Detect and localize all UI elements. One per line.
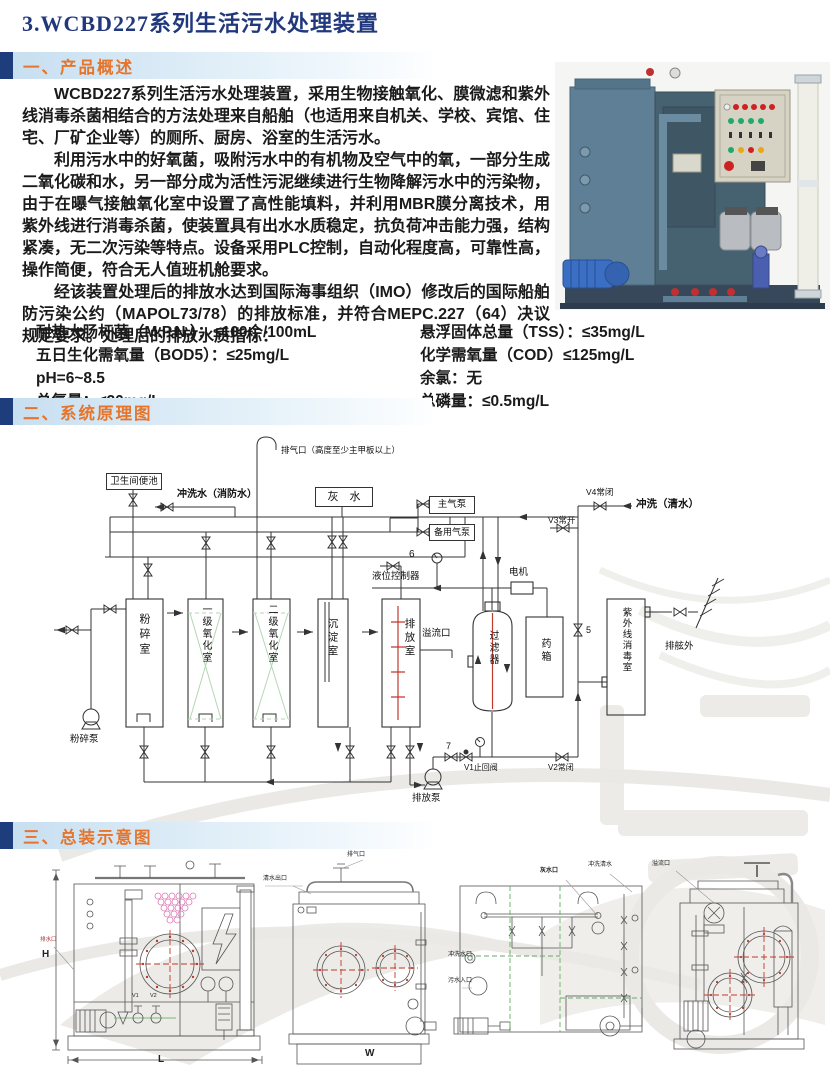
overboard-label: 排舷外 [665, 642, 694, 652]
catalog-page: 3.WCBD227系列生活污水处理装置 一、产品概述 [0, 0, 830, 1069]
overview-paragraph-1: WCBD227系列生活污水处理装置，采用生物接触氧化、膜微滤和紫外线消毒杀菌相结… [22, 84, 550, 150]
spec-item: 耐热大肠杆菌（M.P.N.）：≤100个/100mL [36, 321, 420, 344]
assembly-side-view-2: 溢流口 [652, 845, 830, 1069]
toilet-box: 卫生间便池 [106, 473, 162, 490]
front-view-geometry [52, 861, 262, 1064]
front-view-drawing [40, 852, 265, 1069]
page-title: 3.WCBD227系列生活污水处理装置 [22, 6, 379, 38]
product-photo-art [555, 62, 830, 310]
top-flush-port-label: 冲洗水口 [448, 952, 472, 958]
valve-v4-label: V4常闭 [586, 488, 613, 497]
valve-v1-label: V1止回阀 [464, 764, 498, 772]
section-marker-square [0, 52, 13, 79]
valve-6-label: 6 [409, 550, 415, 560]
overflow-label: 溢流口 [422, 629, 451, 639]
flush-fire-label: 冲洗水（消防水） [177, 490, 257, 500]
main-air-pump-box: 主气泵 [429, 496, 475, 514]
vent-label: 排气口（高度至少主甲板以上） [281, 446, 400, 455]
assembly-front-view: H L V1 V2 排水口 [40, 852, 265, 1069]
crush-pump-label: 粉碎泵 [70, 735, 99, 745]
product-photo [555, 62, 830, 310]
front-view-accents [114, 893, 204, 1024]
tank5-label: 排放室 [404, 618, 415, 659]
valve-v3-label: V3常开 [548, 516, 575, 525]
specs-right-column: 悬浮固体总量（TSS）：≤35mg/L 化学需氧量（COD）≤125mg/L 余… [420, 321, 690, 413]
dim-h-label: H [42, 950, 49, 960]
side-view-geometry [265, 860, 436, 1064]
top-view-drawing [448, 858, 653, 1069]
front-v2-label: V2 [150, 994, 157, 1000]
section-title-assembly: 三、总装示意图 [23, 824, 153, 848]
control-panel [715, 90, 790, 182]
tank3-label: 二级氧化室 [266, 604, 276, 664]
valve-v2-label: V2常闭 [548, 764, 574, 772]
system-schematic: 排气口（高度至少主甲板以上） 卫生间便池 冲洗水（消防水） 灰 水 主气泵 备用… [20, 430, 810, 818]
top-sewage-inlet-label: 污水入口 [448, 978, 472, 984]
backup-air-pump-box: 备用气泵 [429, 524, 475, 541]
dim-w-label: W [365, 1049, 374, 1059]
assembly-side-view: W 排气口 清水出口 [263, 852, 453, 1069]
side-view-2-geometry [674, 863, 804, 1049]
chem-box-label: 药箱 [539, 638, 549, 664]
side2-overflow-label: 溢流口 [652, 861, 670, 867]
tank2-label: 一级氧化室 [200, 604, 210, 664]
section-header-overview: 一、产品概述 [0, 52, 432, 79]
membrane-tube [795, 75, 821, 298]
gray-water-box: 灰 水 [315, 487, 373, 507]
dim-l-label: L [158, 1055, 164, 1065]
top-gray-port-label: 灰水口 [540, 868, 558, 874]
side-view-drawing [263, 852, 453, 1069]
honeycomb-media [155, 893, 196, 923]
flush-clean-label: 冲洗（清水） [636, 499, 699, 510]
spec-item: 总磷量：≤0.5mg/L [420, 390, 690, 413]
side-vent-label: 排气口 [347, 852, 365, 858]
valve-5-label: 5 [586, 626, 591, 635]
discharge-pump-label: 排放泵 [412, 794, 441, 804]
top-flush-clean-label: 冲洗清水 [588, 862, 612, 868]
section-marker-square [0, 398, 13, 425]
side-clean-outlet-label: 清水出口 [263, 876, 287, 882]
filter-label: 过滤器 [487, 630, 497, 666]
uv-chamber-label: 紫外线消毒室 [621, 607, 631, 673]
spec-item: 悬浮固体总量（TSS）：≤35mg/L [420, 321, 690, 344]
spec-item: 化学需氧量（COD）≤125mg/L [420, 344, 690, 367]
section-header-schematic: 二、系统原理图 [0, 398, 432, 425]
assembly-top-view: 灰水口 冲洗清水 冲洗水口 污水入口 [448, 858, 653, 1069]
side-view-2-drawing [652, 845, 830, 1069]
top-view-geometry [454, 874, 642, 1036]
dosing-pump [753, 246, 769, 288]
section-marker-square [0, 822, 13, 849]
spec-item: 余氯：无 [420, 367, 690, 390]
spec-item: 五日生化需氧量（BOD5）：≤25mg/L [36, 344, 420, 367]
spec-item: pH=6~8.5 [36, 367, 420, 390]
section-header-assembly: 三、总装示意图 [0, 822, 432, 849]
front-drain-label: 排水口 [40, 938, 57, 944]
overview-paragraph-2: 利用污水中的好氧菌，吸附污水中的有机物及空气中的氧，一部分生成二氧化碳和水，另一… [22, 150, 550, 282]
valve-7-label: 7 [446, 742, 451, 751]
section-title-overview: 一、产品概述 [23, 54, 134, 78]
overview-text: WCBD227系列生活污水处理装置，采用生物接触氧化、膜微滤和紫外线消毒杀菌相结… [22, 84, 550, 348]
feed-pump [563, 260, 629, 288]
motor-label: 电机 [509, 568, 528, 578]
valves [66, 494, 686, 761]
top-view-green-axes [460, 886, 642, 1032]
tank1-label: 粉碎室 [138, 613, 149, 658]
tank4-label: 沉淀室 [327, 618, 338, 659]
section-title-schematic: 二、系统原理图 [23, 400, 153, 424]
level-controller-label: 液位控制器 [372, 572, 420, 582]
front-v1-label: V1 [132, 994, 139, 1000]
